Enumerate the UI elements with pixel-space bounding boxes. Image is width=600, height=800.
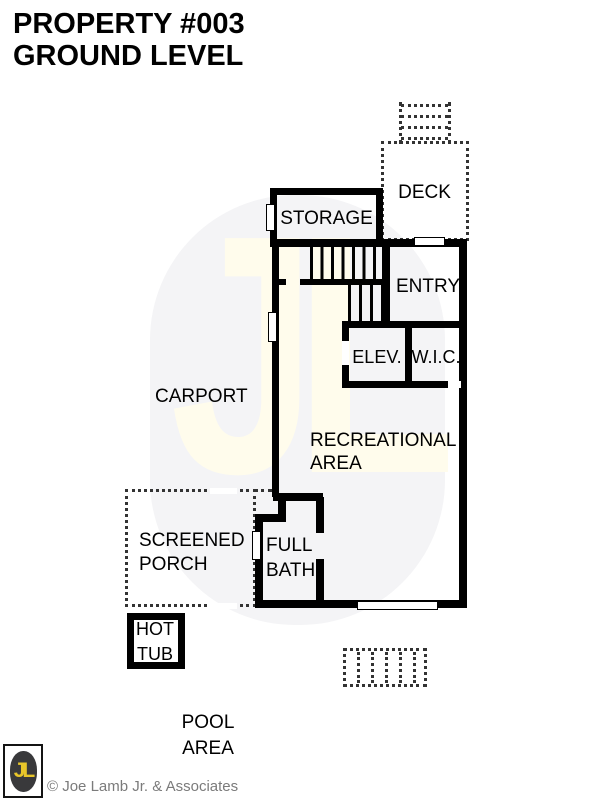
- pool-area-label: POOL AREA: [172, 710, 244, 762]
- stairs-upper-flight: [310, 247, 385, 279]
- stairs-lower-flight: [348, 285, 385, 321]
- screened-porch-label: SCREENED PORCH: [139, 529, 245, 577]
- pool-step-divider: [357, 652, 360, 683]
- porch-screen-opening-top: [210, 488, 237, 494]
- logo-monogram: JL: [14, 759, 33, 783]
- carport-label: CARPORT: [155, 385, 248, 408]
- bath-right-wall-lower: [316, 559, 324, 607]
- joe-lamb-logo: JL: [3, 744, 43, 798]
- logo-oval: JL: [10, 751, 37, 792]
- bath-right-wall-upper: [316, 497, 324, 533]
- elevator-label: ELEV.: [342, 346, 412, 369]
- deck-stairs-tread: [401, 137, 448, 140]
- deck-stairs-tread: [401, 104, 448, 107]
- carport-side-door: [268, 312, 277, 342]
- recreational-area-label: RECREATIONAL AREA: [310, 429, 456, 475]
- wic-door-gap: [448, 381, 461, 388]
- entry-deck-door: [414, 237, 445, 246]
- copyright-text: © Joe Lamb Jr. & Associates: [47, 778, 238, 795]
- entry-label: ENTRY: [396, 275, 460, 298]
- main-left-wall: [272, 246, 279, 497]
- deck-stairs-tread: [401, 115, 448, 118]
- deck-stairs-tread: [401, 126, 448, 129]
- wic-label: W.I.C.: [405, 346, 467, 369]
- landing-stub-wall: [279, 279, 286, 285]
- floorplan-page: PROPERTY #003GROUND LEVEL JL: [0, 0, 600, 800]
- storage-door: [266, 204, 275, 231]
- title-line1: PROPERTY #003: [13, 8, 245, 40]
- deck-label: DECK: [381, 181, 468, 204]
- full-bath-label: FULL BATH: [266, 533, 315, 583]
- pool-step-divider: [399, 652, 402, 683]
- bath-left-wall: [255, 514, 263, 608]
- pool-step-divider: [385, 652, 388, 683]
- hot-tub-label: HOT TUB: [130, 617, 180, 667]
- title-line2: GROUND LEVEL: [13, 40, 243, 72]
- storage-label: STORAGE: [277, 207, 376, 230]
- deck-stairs-right-rail: [448, 102, 451, 144]
- screened-porch-top-segment: [254, 489, 272, 492]
- page-title: PROPERTY #003GROUND LEVEL: [13, 8, 245, 72]
- pool-step-divider: [413, 652, 416, 683]
- pool-step-divider: [371, 652, 374, 683]
- bath-door: [252, 531, 261, 560]
- stairs-right-wall: [382, 246, 390, 321]
- porch-screen-opening-bottom: [210, 603, 237, 609]
- main-right-wall: [459, 239, 467, 608]
- rec-area-patio-door: [357, 601, 438, 610]
